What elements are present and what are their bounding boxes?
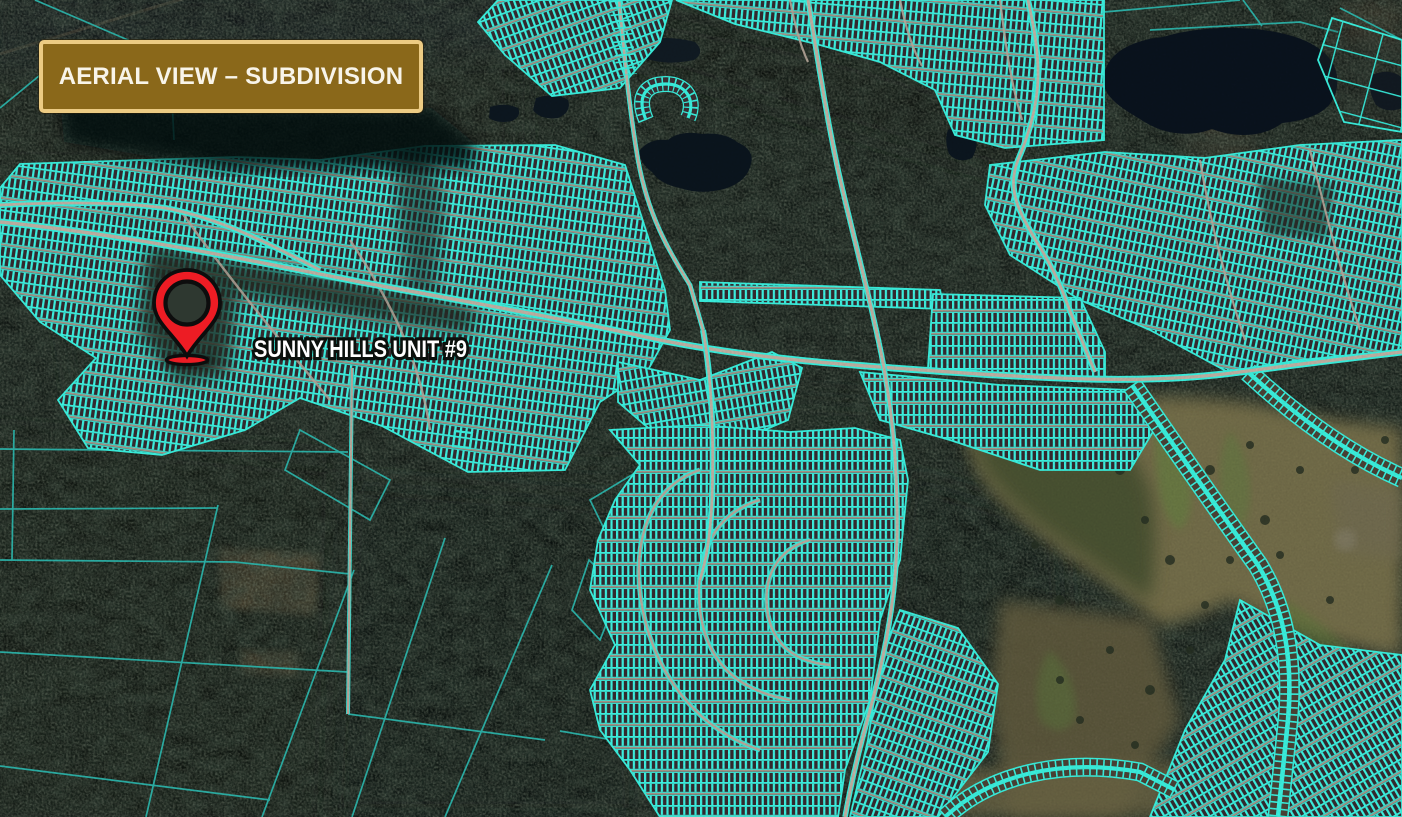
- svg-text:SUNNY HILLS UNIT #9: SUNNY HILLS UNIT #9: [254, 336, 467, 363]
